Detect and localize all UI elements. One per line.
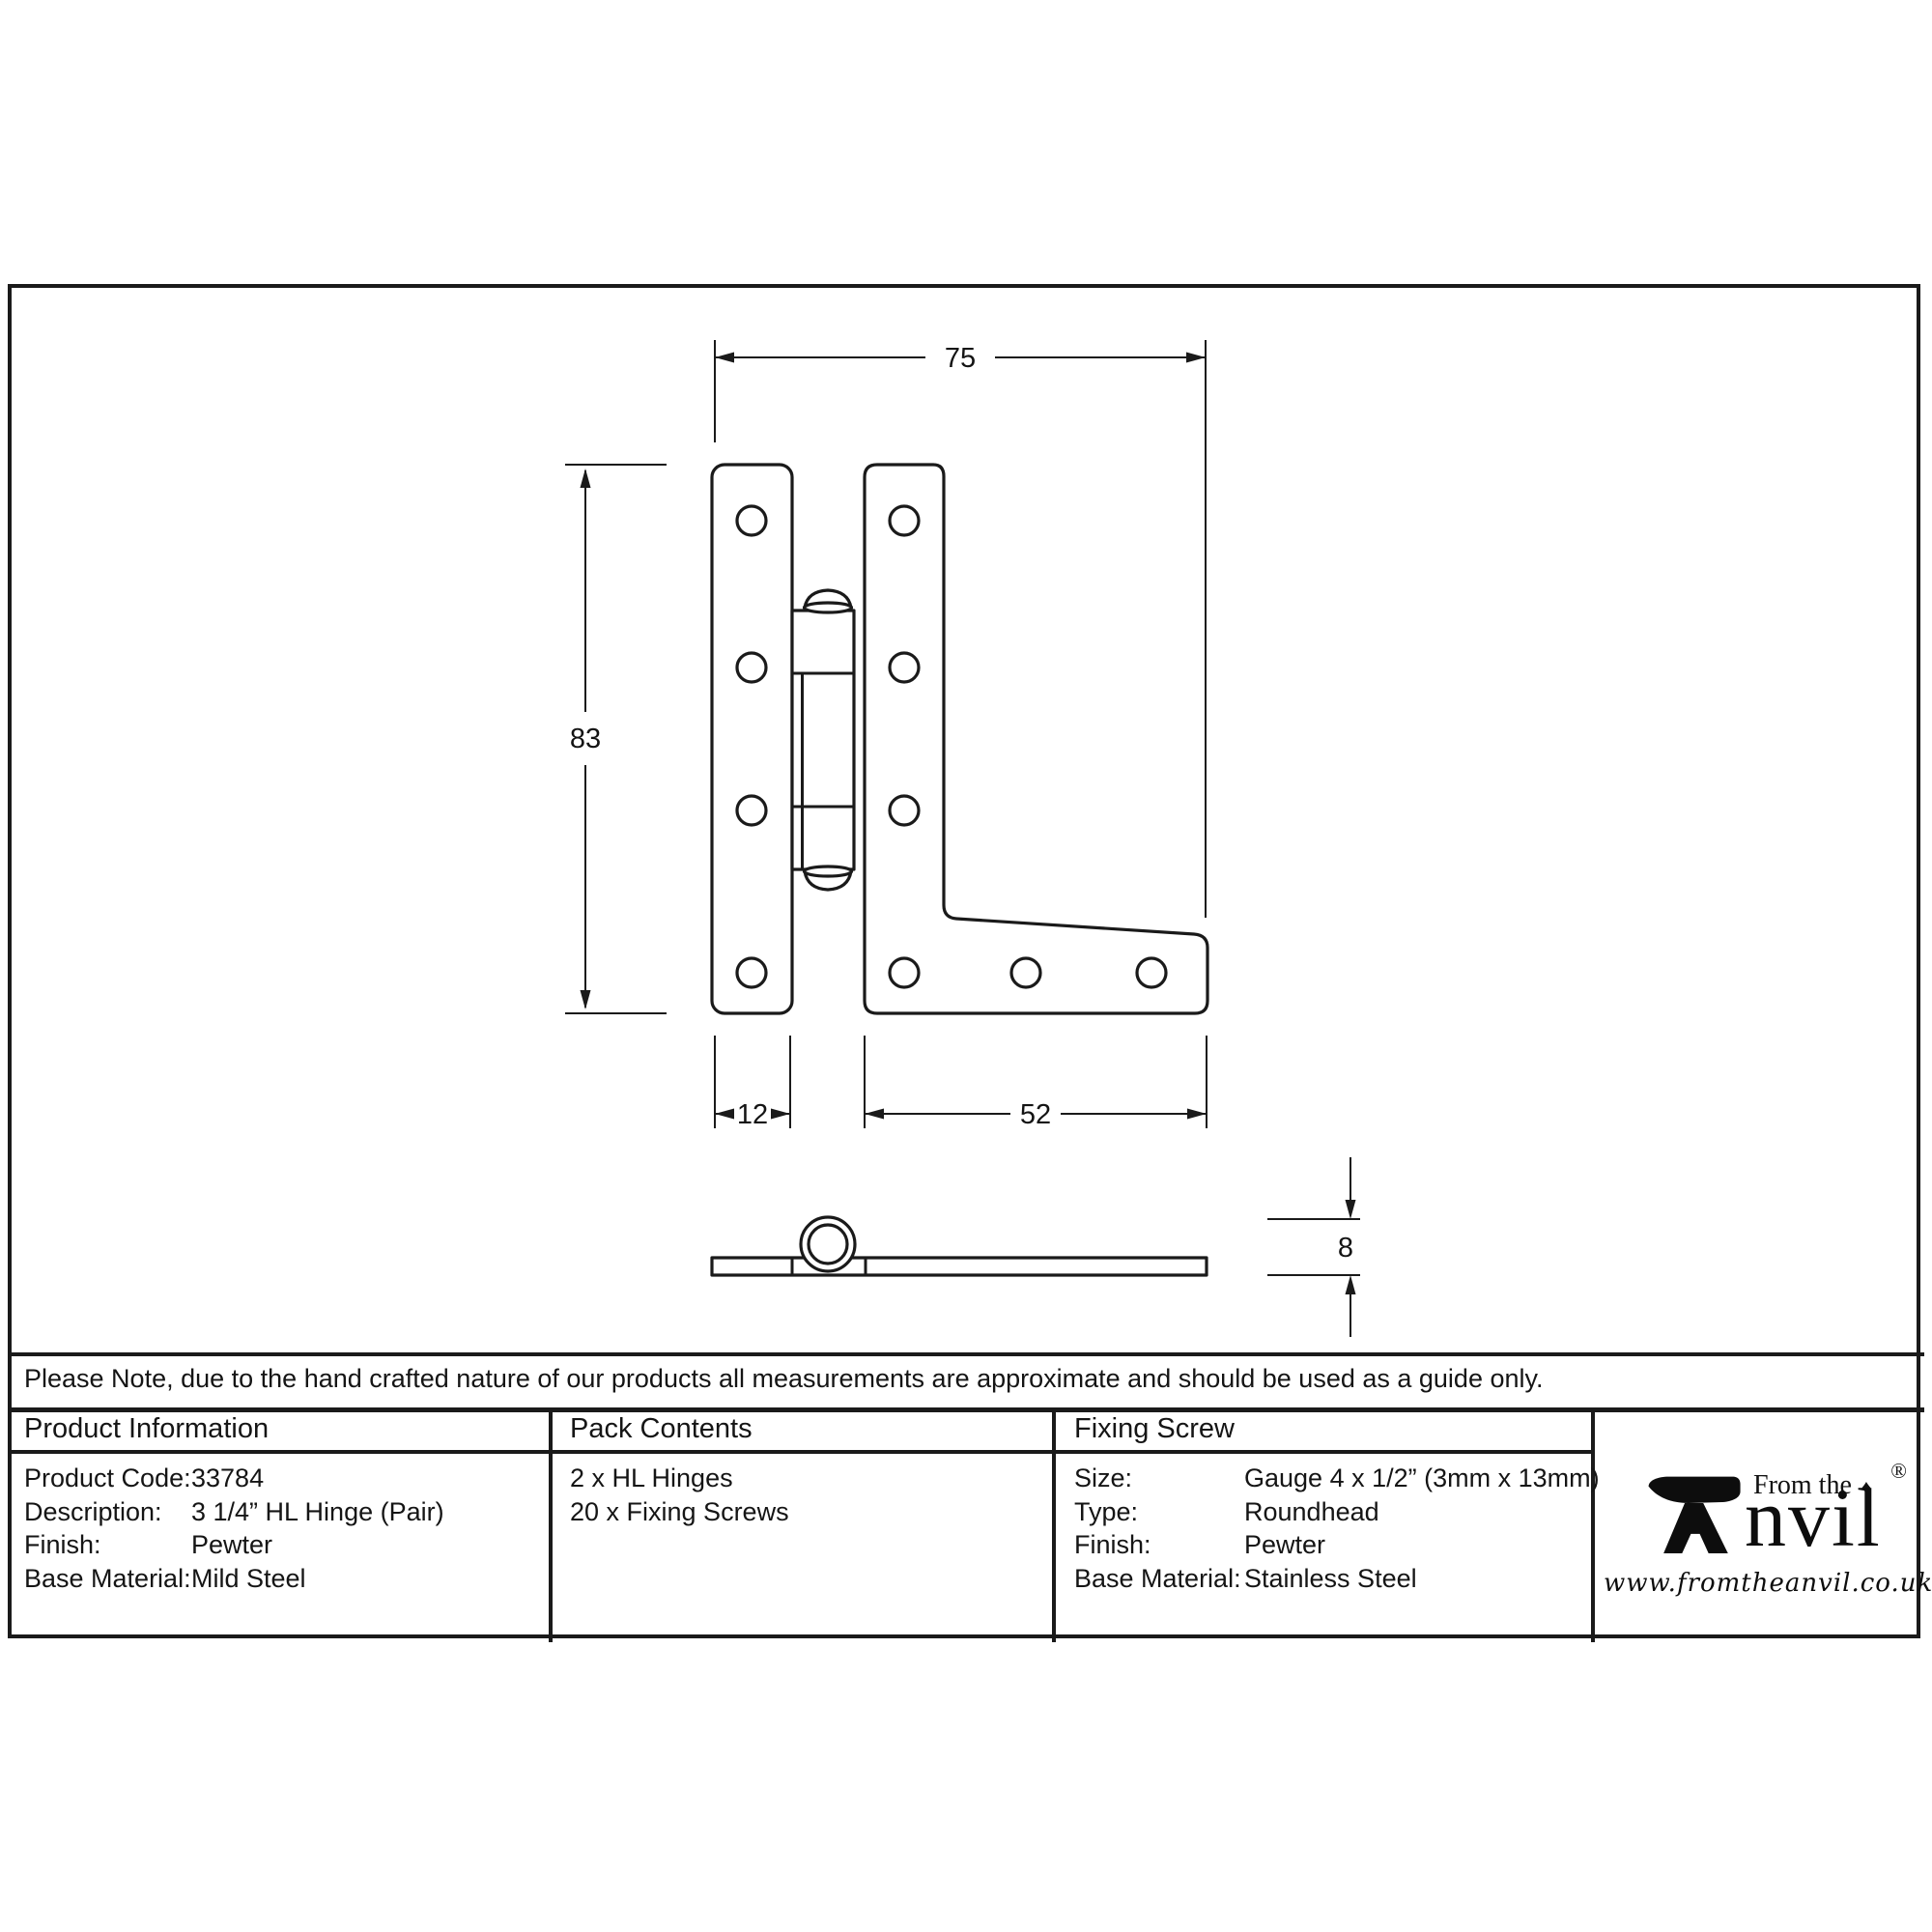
finish-value: Pewter <box>191 1530 272 1560</box>
screw-base-material-label: Base Material: <box>1074 1564 1241 1594</box>
column-header-pack-contents: Pack Contents <box>570 1413 753 1445</box>
table-divider-2 <box>1052 1407 1056 1642</box>
screw-type-label: Type: <box>1074 1497 1138 1527</box>
table-header-bottom-line <box>8 1450 1595 1454</box>
description-label: Description: <box>24 1497 162 1527</box>
screw-size-label: Size: <box>1074 1463 1132 1493</box>
registered-trademark-icon: ® <box>1890 1459 1907 1484</box>
measurement-note: Please Note, due to the hand crafted nat… <box>24 1364 1544 1394</box>
spec-sheet: { "dimensions": { "overall_width": "75",… <box>0 0 1932 1932</box>
screw-base-material-value: Stainless Steel <box>1244 1564 1417 1594</box>
screw-finish-value: Pewter <box>1244 1530 1325 1560</box>
pack-contents-item: 20 x Fixing Screws <box>570 1497 789 1527</box>
product-code-value: 33784 <box>191 1463 264 1493</box>
base-material-value: Mild Steel <box>191 1564 306 1594</box>
screw-finish-label: Finish: <box>1074 1530 1151 1560</box>
screw-size-value: Gauge 4 x 1/2” (3mm x 13mm) <box>1244 1463 1600 1493</box>
screw-type-value: Roundhead <box>1244 1497 1379 1527</box>
sheet-border <box>8 284 1920 1638</box>
brand-name: nvil <box>1745 1476 1882 1559</box>
finish-label: Finish: <box>24 1530 101 1560</box>
table-divider-1 <box>549 1407 553 1642</box>
table-header-top-line <box>8 1407 1924 1412</box>
column-header-product-information: Product Information <box>24 1413 269 1445</box>
brand-website: www.fromtheanvil.co.uk <box>1604 1569 1913 1598</box>
base-material-label: Base Material: <box>24 1564 191 1594</box>
from-the-anvil-logo: From the♦ ® nvil www.fromtheanvil.co.uk <box>1604 1451 1913 1640</box>
table-divider-3 <box>1591 1407 1595 1642</box>
column-header-fixing-screw: Fixing Screw <box>1074 1413 1235 1445</box>
product-code-label: Product Code: <box>24 1463 191 1493</box>
description-value: 3 1/4” HL Hinge (Pair) <box>191 1497 444 1527</box>
note-row-top-line <box>8 1352 1924 1356</box>
anvil-icon <box>1645 1472 1746 1553</box>
pack-contents-item: 2 x HL Hinges <box>570 1463 733 1493</box>
